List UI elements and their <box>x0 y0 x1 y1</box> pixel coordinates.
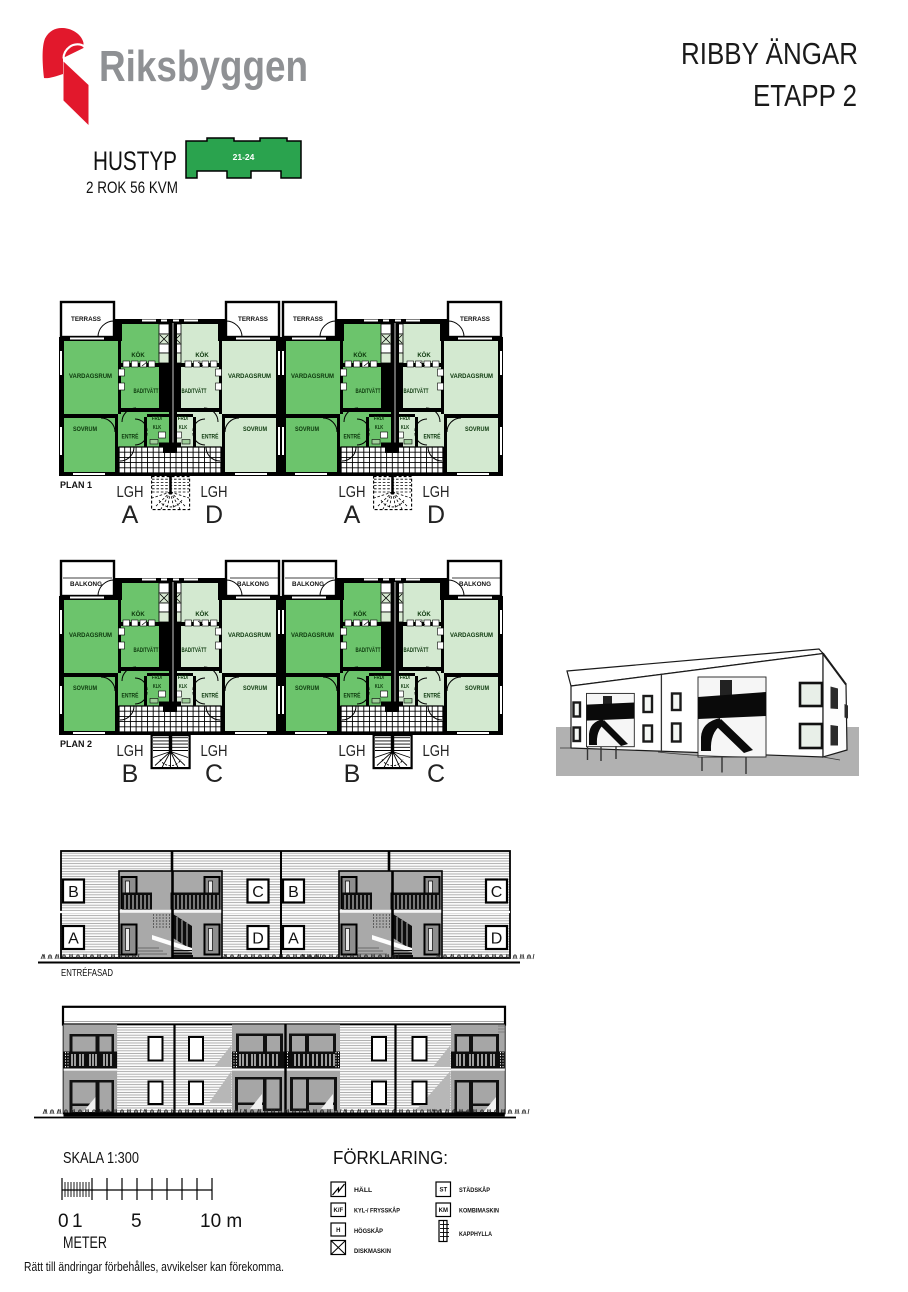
svg-text:ETAPP 2: ETAPP 2 <box>753 78 857 113</box>
svg-text:C: C <box>427 760 445 788</box>
svg-text:KAPPHYLLA: KAPPHYLLA <box>459 1231 492 1238</box>
svg-text:D: D <box>252 931 264 948</box>
svg-text:BALKONG: BALKONG <box>237 581 269 588</box>
svg-text:SKALA 1:300: SKALA 1:300 <box>63 1150 139 1167</box>
svg-text:Riksbyggen: Riksbyggen <box>99 42 308 91</box>
svg-text:H: H <box>336 1228 340 1234</box>
svg-text:METER: METER <box>63 1234 107 1252</box>
svg-text:D: D <box>491 931 503 948</box>
svg-text:KYL-/ FRYSSKÅP: KYL-/ FRYSSKÅP <box>354 1206 400 1215</box>
svg-text:C: C <box>252 884 264 901</box>
svg-text:B: B <box>344 760 361 788</box>
svg-text:HUSTYP: HUSTYP <box>93 146 177 176</box>
svg-text:D: D <box>205 501 223 529</box>
svg-text:B: B <box>288 884 299 901</box>
svg-text:DISKMASKIN: DISKMASKIN <box>354 1248 391 1255</box>
svg-text:KM: KM <box>439 1208 448 1214</box>
svg-text:2 ROK 56 KVM: 2 ROK 56 KVM <box>86 179 178 197</box>
svg-text:HÖGSKÅP: HÖGSKÅP <box>354 1226 383 1235</box>
svg-text:LGH: LGH <box>339 484 366 501</box>
svg-text:STÄDSKÅP: STÄDSKÅP <box>459 1185 490 1194</box>
svg-text:TERRASS: TERRASS <box>293 316 324 323</box>
svg-text:LGH: LGH <box>201 484 228 501</box>
svg-text:LGH: LGH <box>423 484 450 501</box>
svg-text:LGH: LGH <box>201 743 228 760</box>
svg-text:PLAN 2: PLAN 2 <box>60 739 92 749</box>
svg-text:PLAN 1: PLAN 1 <box>60 480 92 490</box>
svg-text:5: 5 <box>131 1211 142 1232</box>
svg-text:A: A <box>68 931 79 948</box>
svg-text:TERRASS: TERRASS <box>238 316 269 323</box>
svg-text:B: B <box>122 760 139 788</box>
svg-text:21-24: 21-24 <box>233 152 255 162</box>
svg-text:D: D <box>427 501 445 529</box>
svg-text:1: 1 <box>72 1211 83 1232</box>
svg-text:K/F: K/F <box>333 1208 343 1214</box>
svg-text:10 m: 10 m <box>200 1211 242 1232</box>
svg-text:C: C <box>491 884 503 901</box>
svg-text:C: C <box>205 760 223 788</box>
svg-text:BALKONG: BALKONG <box>459 581 491 588</box>
svg-text:ENTRÉFASAD: ENTRÉFASAD <box>61 966 113 979</box>
svg-text:ST: ST <box>439 1188 447 1194</box>
svg-text:A: A <box>344 501 361 529</box>
svg-text:BALKONG: BALKONG <box>70 581 102 588</box>
svg-text:Rätt till ändringar förbehålle: Rätt till ändringar förbehålles, avvikel… <box>24 1260 284 1274</box>
svg-text:TERRASS: TERRASS <box>460 316 491 323</box>
svg-text:KOMBIMASKIN: KOMBIMASKIN <box>459 1208 499 1215</box>
svg-text:A: A <box>288 931 299 948</box>
svg-text:FÖRKLARING:: FÖRKLARING: <box>333 1148 448 1168</box>
svg-text:RIBBY ÄNGAR: RIBBY ÄNGAR <box>681 36 858 71</box>
svg-text:0: 0 <box>58 1211 69 1232</box>
svg-text:A: A <box>122 501 139 529</box>
svg-text:HÄLL: HÄLL <box>354 1186 372 1194</box>
svg-text:LGH: LGH <box>339 743 366 760</box>
svg-text:LGH: LGH <box>117 484 144 501</box>
svg-text:TERRASS: TERRASS <box>71 316 102 323</box>
svg-text:BALKONG: BALKONG <box>292 581 324 588</box>
svg-text:LGH: LGH <box>117 743 144 760</box>
svg-text:LGH: LGH <box>423 743 450 760</box>
svg-text:B: B <box>68 884 79 901</box>
